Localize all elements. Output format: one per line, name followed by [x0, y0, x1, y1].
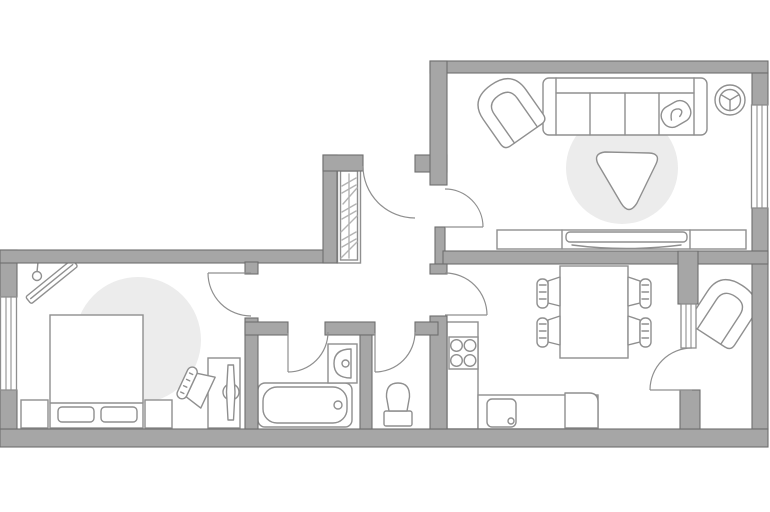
- wall-segment: [323, 155, 363, 171]
- wall-segment: [0, 429, 768, 447]
- kitchen-sink-symbol: [487, 399, 516, 427]
- wall-segment: [0, 250, 337, 263]
- wall-segment: [360, 335, 372, 429]
- corner-tv-symbol: [26, 259, 78, 304]
- living-armchair-symbol: [470, 70, 548, 150]
- fridge-symbol: [565, 393, 598, 428]
- wall-segment: [415, 322, 438, 335]
- wall-segment: [325, 322, 375, 335]
- nightstand-symbol: [21, 400, 48, 428]
- floor-plan: [0, 0, 770, 512]
- floor-lamp-symbol: [715, 85, 745, 115]
- wall-segment: [752, 208, 768, 429]
- wc-door: [375, 332, 415, 372]
- bedroom-window: [1, 297, 17, 390]
- living-room-window: [752, 105, 768, 208]
- stove-symbol: [449, 337, 478, 369]
- bathroom-door: [288, 332, 328, 372]
- tv-bracket-symbol: [33, 262, 42, 281]
- wall-segment: [430, 264, 447, 274]
- bedroom-door: [208, 273, 251, 316]
- bathroom-sink-symbol: [328, 344, 357, 383]
- wardrobe-symbol: [338, 168, 361, 263]
- wall-segment: [443, 251, 768, 264]
- entry-door: [363, 166, 415, 218]
- toilet-symbol: [384, 383, 412, 426]
- nightstand-symbol: [145, 400, 172, 428]
- kitchen-door: [445, 273, 487, 315]
- loggia-door: [650, 348, 692, 390]
- dining-chair-symbol: [537, 277, 560, 308]
- dining-chair-symbol: [628, 316, 651, 347]
- dining-chair-symbol: [537, 316, 560, 347]
- bed-symbol: [50, 315, 143, 428]
- bathtub-symbol: [258, 383, 352, 427]
- wall-segment: [680, 390, 700, 429]
- loggia-partition-window: [681, 304, 696, 348]
- dining-chair-symbol: [628, 277, 651, 308]
- wall-segment: [752, 73, 768, 105]
- dining-table-symbol: [560, 266, 628, 358]
- tv-console-symbol: [497, 230, 746, 249]
- wall-segment: [430, 61, 768, 73]
- floor-plan-canvas: [0, 0, 770, 512]
- wall-segment: [678, 251, 698, 304]
- wall-segment: [245, 322, 288, 335]
- wall-segment: [430, 61, 447, 185]
- living-room-door: [445, 189, 483, 227]
- wall-segment: [245, 262, 258, 274]
- wall-segment: [0, 390, 17, 429]
